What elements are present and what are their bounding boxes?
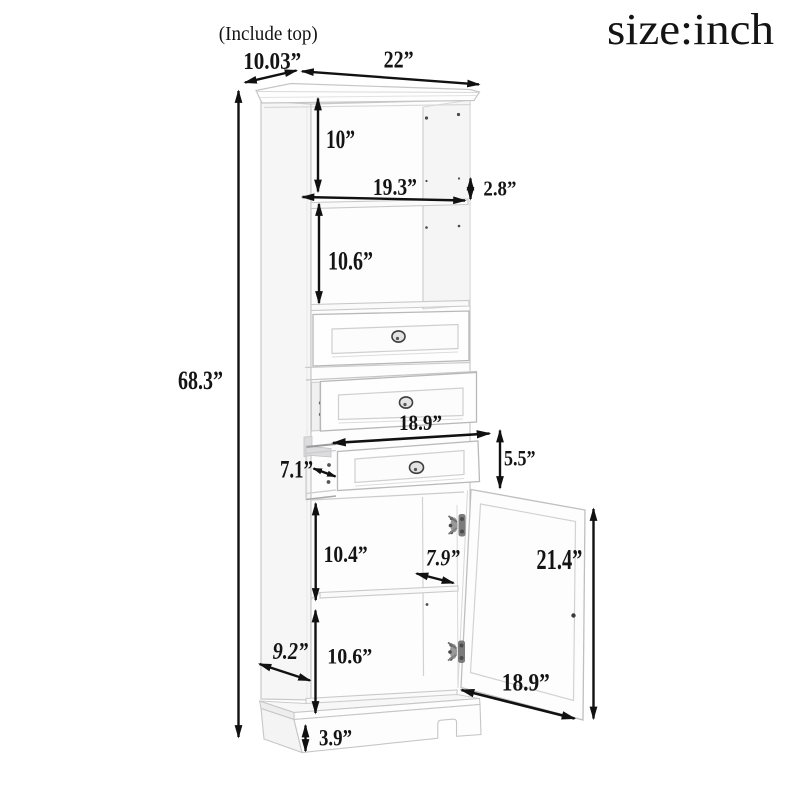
svg-text:18.9”: 18.9”: [502, 670, 550, 697]
svg-text:size:inch: size:inch: [607, 5, 774, 54]
svg-text:7.9”: 7.9”: [426, 545, 460, 570]
svg-text:(Include top): (Include top): [219, 23, 318, 45]
svg-text:10”: 10”: [326, 125, 355, 154]
svg-text:10.6”: 10.6”: [328, 247, 373, 276]
svg-text:5.5”: 5.5”: [504, 446, 536, 471]
svg-text:2.8”: 2.8”: [483, 177, 516, 201]
svg-text:3.9”: 3.9”: [319, 726, 352, 751]
svg-text:7.1”: 7.1”: [280, 457, 313, 484]
svg-text:18.9”: 18.9”: [399, 410, 442, 435]
svg-text:9.2”: 9.2”: [273, 639, 309, 665]
svg-text:21.4”: 21.4”: [536, 545, 582, 576]
svg-text:10.4”: 10.4”: [324, 542, 368, 567]
svg-text:68.3”: 68.3”: [178, 366, 223, 395]
svg-text:22”: 22”: [384, 48, 414, 74]
svg-text:19.3”: 19.3”: [373, 175, 417, 201]
svg-text:10.6”: 10.6”: [327, 644, 372, 669]
svg-text:10.03”: 10.03”: [243, 49, 301, 75]
